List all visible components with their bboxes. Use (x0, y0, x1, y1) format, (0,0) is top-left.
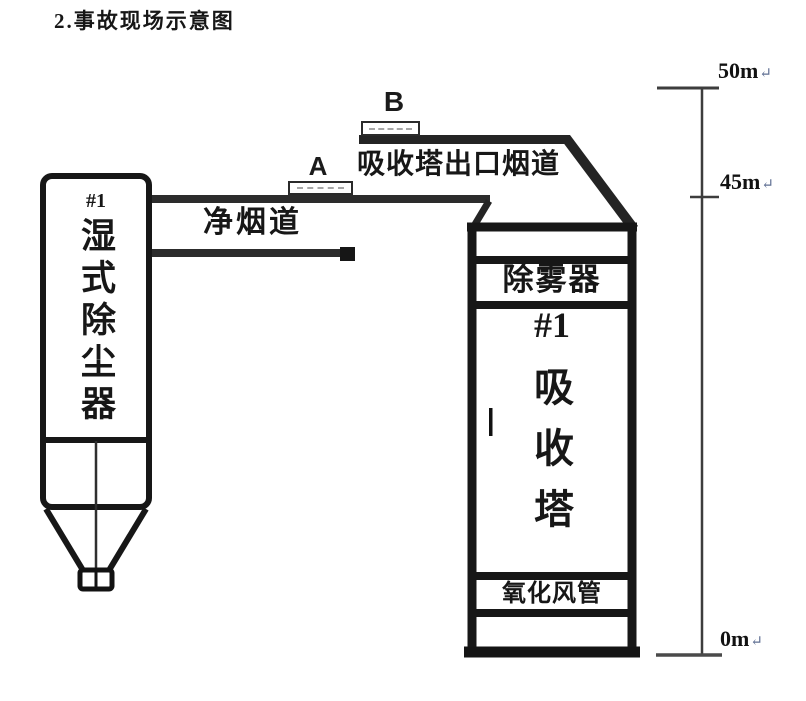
tower-number: #1 (472, 307, 632, 343)
tower-interior-tick (489, 408, 493, 436)
clean-flue-top-line (152, 195, 490, 203)
point-b-marker-hatch (369, 128, 412, 130)
point-b-label: B (375, 88, 413, 116)
return-mark-icon: ↵ (750, 634, 763, 650)
outlet-flue-right-slope (566, 138, 634, 229)
point-b-marker (361, 121, 420, 136)
clean-flue-bottom-line (152, 249, 343, 257)
oxidation-duct-label: 氧化风管 (472, 582, 632, 606)
dust-collector-number: #1 (40, 191, 152, 211)
dust-collector-name: 湿式除尘器 (78, 217, 113, 427)
point-a-label: A (299, 153, 337, 179)
scale-label-50m-value: 50m (718, 58, 758, 83)
outlet-flue-top-line (359, 135, 570, 144)
point-a-marker (288, 181, 353, 195)
tower-name: 吸收塔 (530, 366, 570, 549)
scale-label-45m: 45m↵ (720, 171, 774, 193)
demister-label: 除雾器 (472, 264, 632, 295)
scale-label-0m-value: 0m (720, 626, 749, 651)
return-mark-icon: ↵ (761, 177, 774, 193)
scale-label-50m: 50m↵ (718, 60, 772, 82)
return-mark-icon: ↵ (759, 66, 772, 82)
point-a-marker-hatch (297, 187, 345, 189)
clean-flue-end-cap (340, 247, 355, 261)
clean-flue-label: 净烟道 (203, 208, 302, 238)
hopper-right-slope (108, 509, 146, 572)
scale-label-45m-value: 45m (720, 169, 760, 194)
outlet-flue-label: 吸收塔出口烟道 (357, 151, 560, 179)
hopper-left-slope (46, 509, 84, 572)
accident-scene-diagram-page: 2.事故现场示意图 #1 湿式除尘器 (0, 0, 806, 701)
scale-label-0m: 0m↵ (720, 628, 763, 650)
